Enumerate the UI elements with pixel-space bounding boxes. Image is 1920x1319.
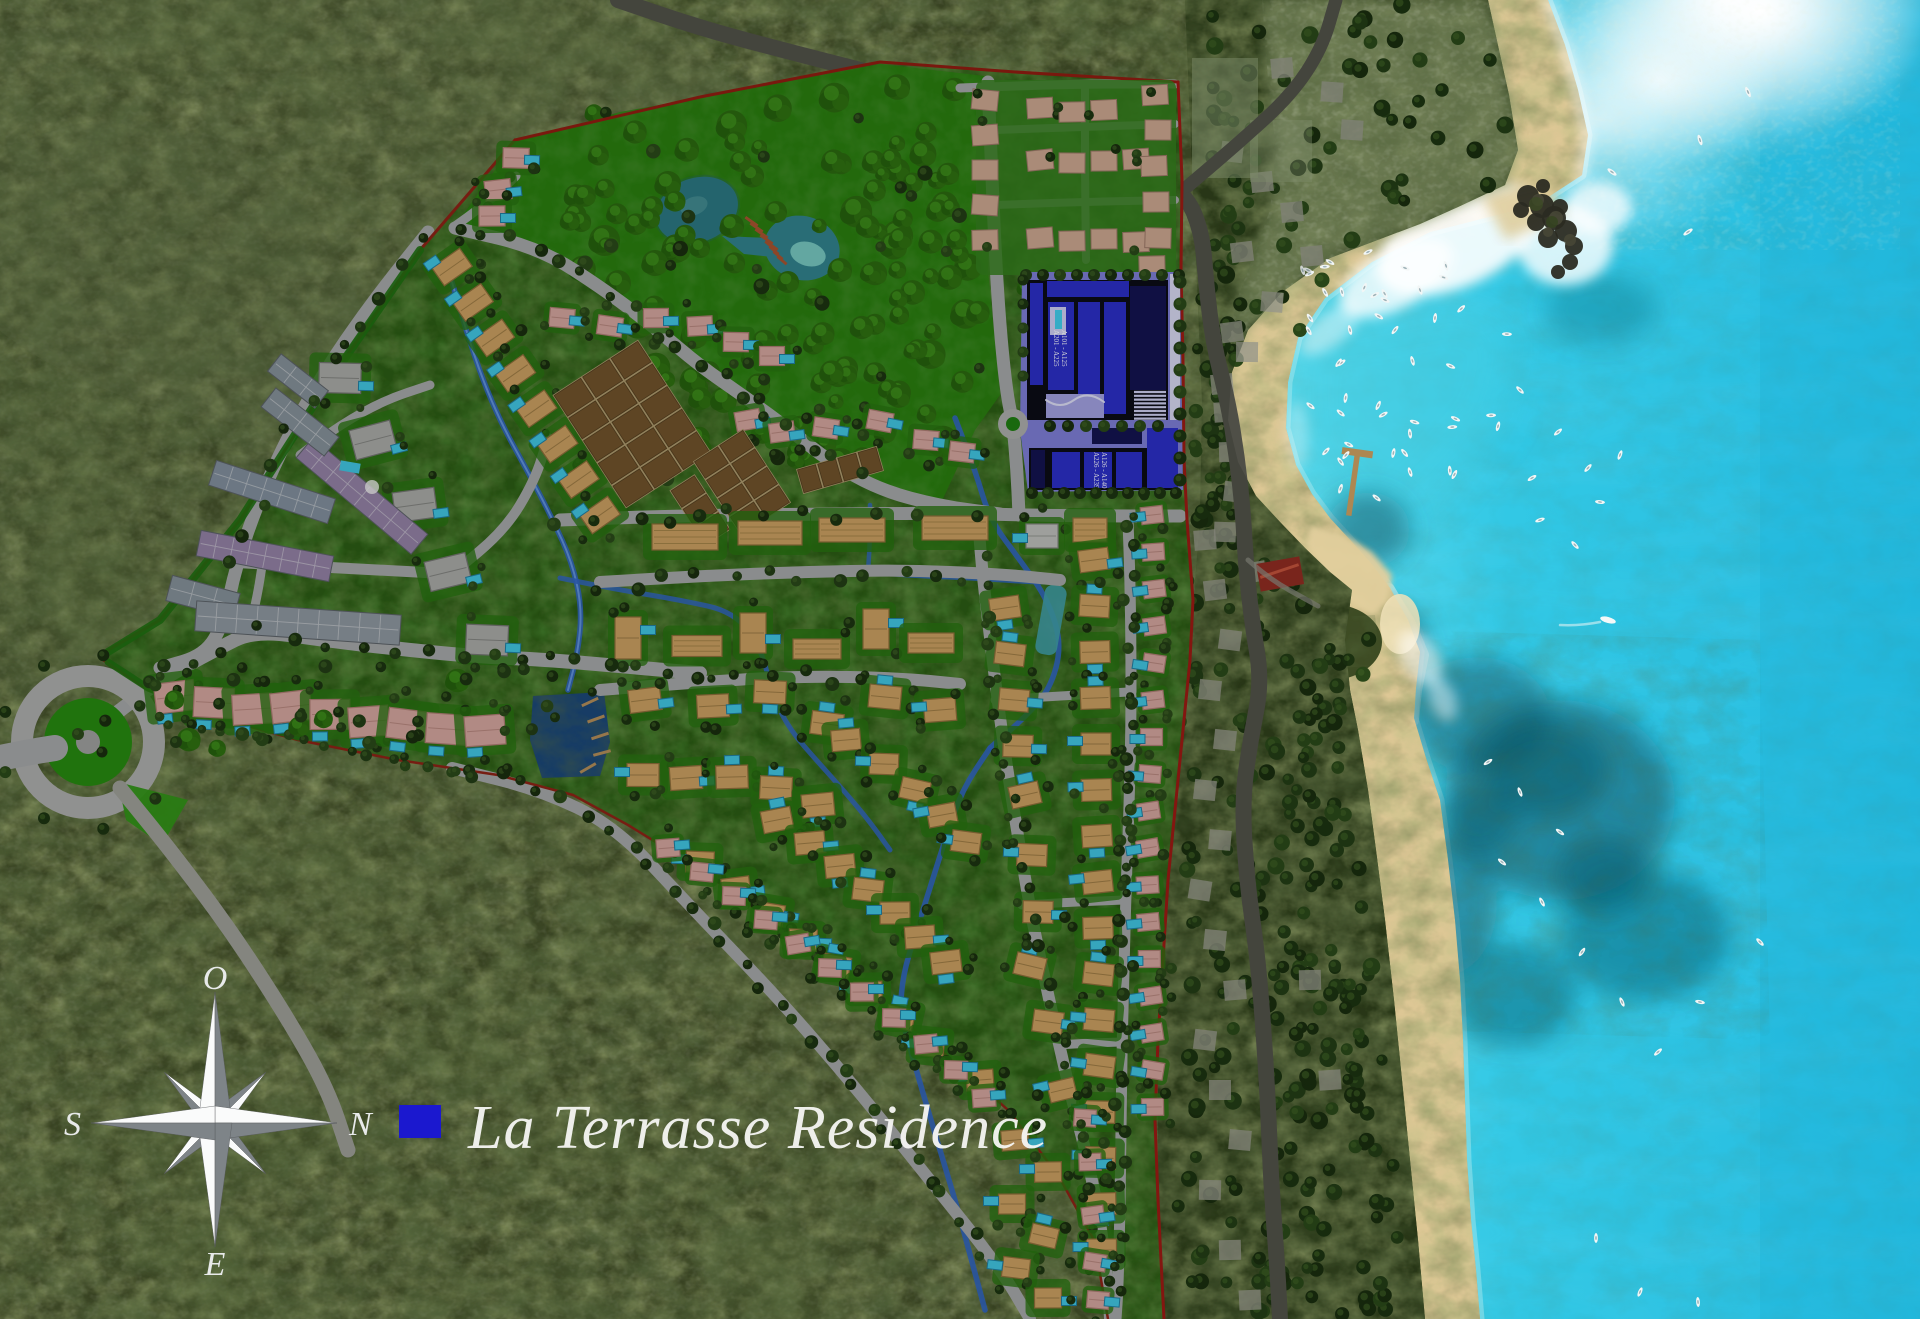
- svg-text:O: O: [203, 960, 228, 997]
- svg-text:E: E: [204, 1246, 226, 1283]
- svg-text:N: N: [348, 1106, 374, 1143]
- svg-text:S: S: [64, 1106, 81, 1143]
- svg-text:La Terrasse Residence: La Terrasse Residence: [467, 1094, 1048, 1162]
